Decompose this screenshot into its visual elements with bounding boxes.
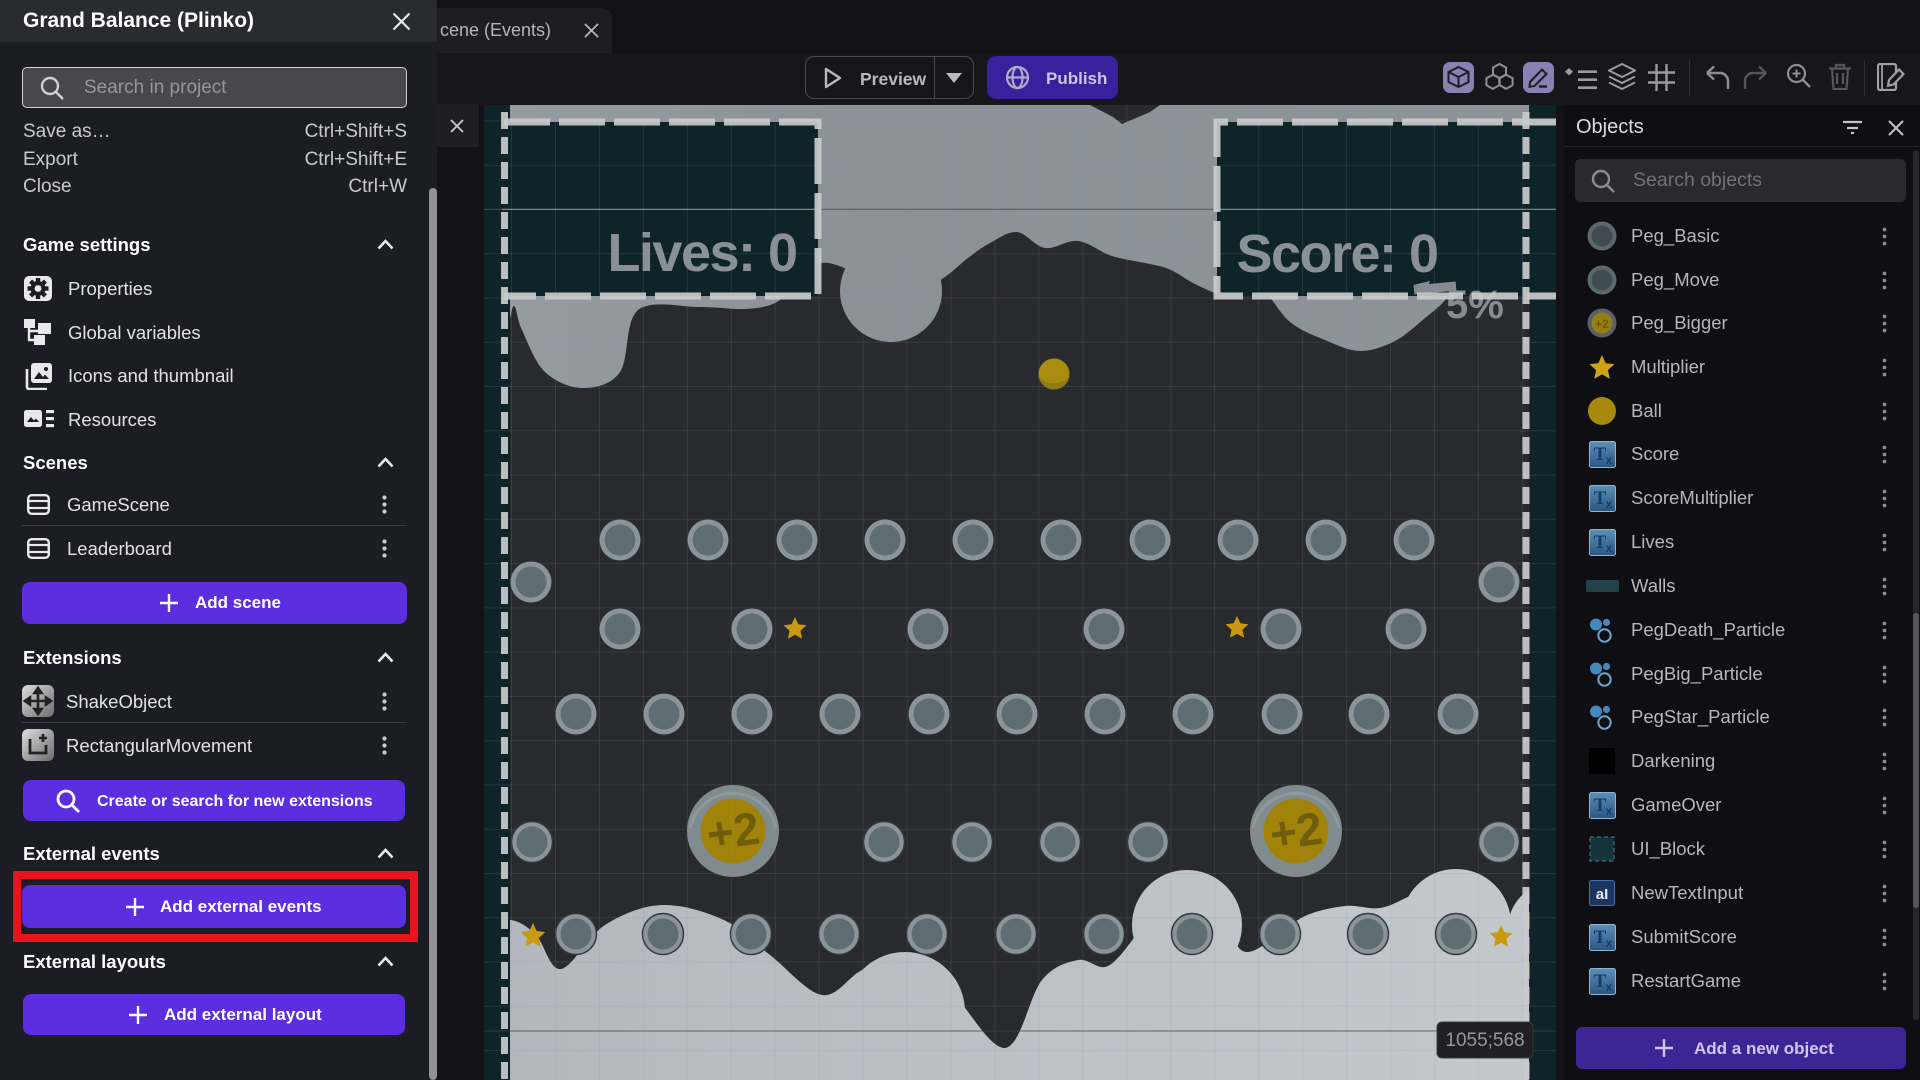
svg-text:x: x <box>1606 497 1613 511</box>
svg-text:x: x <box>1606 980 1613 994</box>
svg-text:+2: +2 <box>1595 317 1609 331</box>
svg-text:1055;568: 1055;568 <box>1445 1030 1524 1051</box>
svg-text:aI: aI <box>1596 886 1609 903</box>
svg-text:Lives: 0: Lives: 0 <box>607 223 796 283</box>
svg-text:x: x <box>1606 936 1613 950</box>
svg-text:5%: 5% <box>1446 283 1504 327</box>
svg-text:+2: +2 <box>703 802 762 861</box>
svg-text:x: x <box>1606 541 1613 555</box>
svg-text:+2: +2 <box>1266 802 1325 861</box>
svg-text:x: x <box>1606 453 1613 467</box>
svg-text:x: x <box>1606 804 1613 818</box>
